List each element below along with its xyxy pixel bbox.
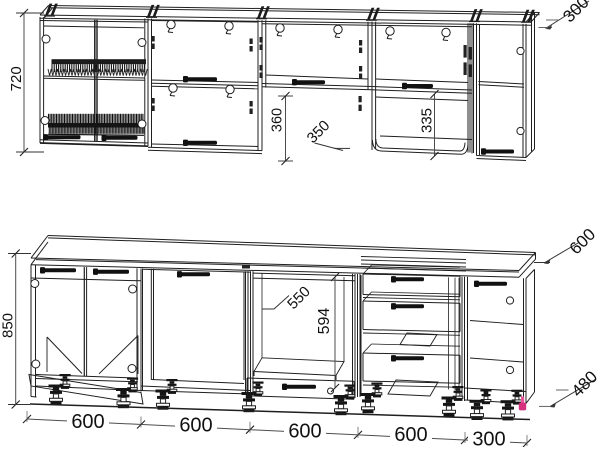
svg-text:600: 600 xyxy=(394,424,427,446)
svg-text:600: 600 xyxy=(71,411,104,433)
svg-text:600: 600 xyxy=(288,420,321,442)
svg-text:600: 600 xyxy=(179,415,212,437)
svg-text:594: 594 xyxy=(316,308,333,335)
svg-text:300: 300 xyxy=(472,429,505,447)
svg-text:335: 335 xyxy=(419,108,436,133)
svg-text:360: 360 xyxy=(270,108,286,132)
svg-text:720: 720 xyxy=(8,66,25,91)
svg-text:850: 850 xyxy=(0,313,16,338)
